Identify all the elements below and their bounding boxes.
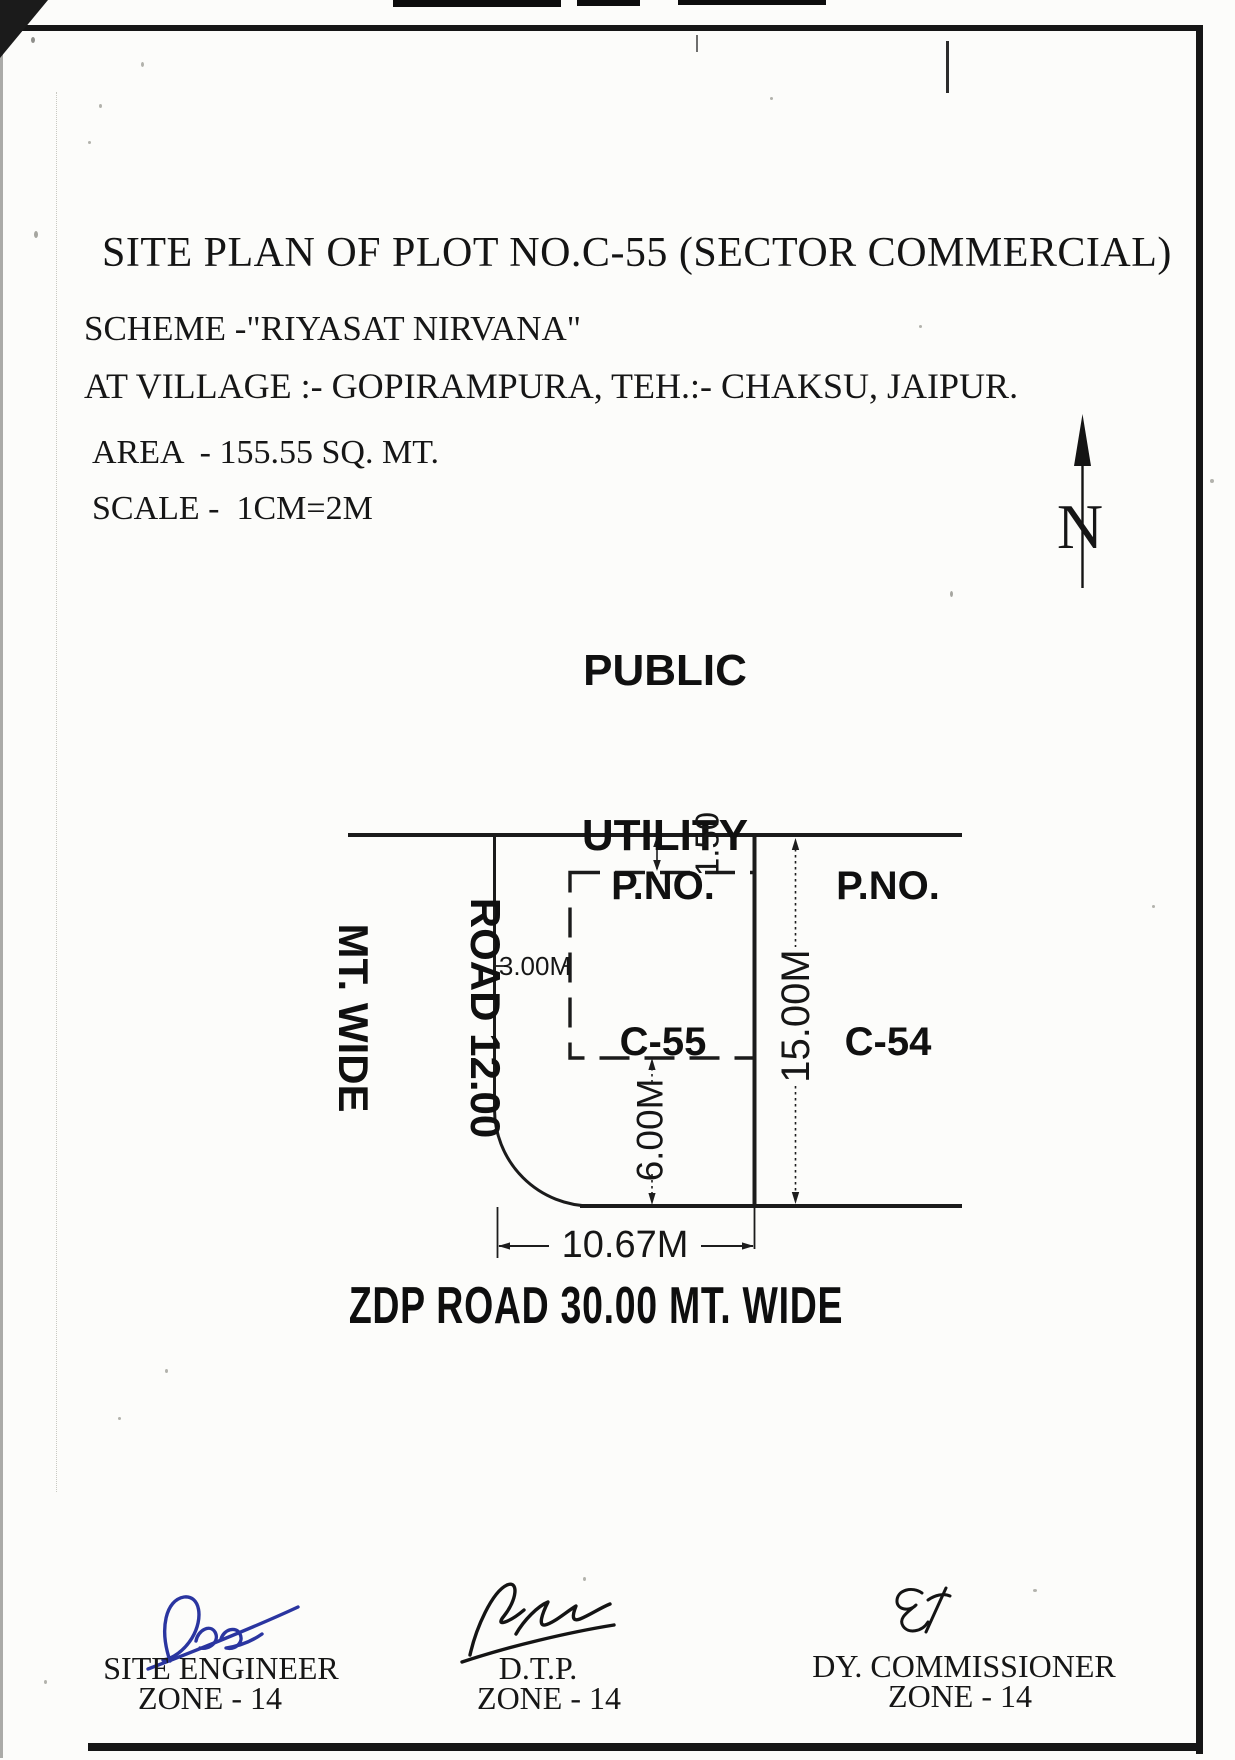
plot-c55-line2: C-55	[611, 1016, 715, 1068]
plot-c54-line1: P.NO.	[836, 860, 940, 912]
plot-c54-label: P.NO. C-54	[836, 756, 940, 1172]
dim-frontage-arrow-right	[742, 1242, 754, 1249]
corner-wedge	[0, 0, 48, 58]
dim-frontage-label: 10.67M	[562, 1226, 689, 1264]
dim-depth-arrow-up	[792, 838, 799, 850]
dim-west-setback-label: 3.00M	[499, 953, 571, 979]
scanned-site-plan-page: SITE PLAN OF PLOT NO.C-55 (SECTOR COMMER…	[0, 0, 1235, 1760]
road-12-line2: MT. WIDE	[331, 898, 375, 1138]
signature-dy-commissioner	[897, 1588, 950, 1632]
dim-depth-label: 15.00M	[776, 949, 816, 1082]
dim-frontage-arrow-left	[498, 1242, 510, 1249]
dim-depth-arrow-down	[792, 1192, 799, 1204]
road-12-line1: ROAD 12.00	[463, 898, 507, 1138]
zdp-road-label: ZDP ROAD 30.00 MT. WIDE	[349, 1280, 843, 1332]
dtp-zone: ZONE - 14	[477, 1682, 621, 1714]
north-arrow-icon	[1074, 414, 1091, 588]
public-utility-line1: PUBLIC	[582, 643, 748, 698]
site-engineer-zone: ZONE - 14	[138, 1682, 282, 1714]
dim-south-setback-arrow-down	[648, 1193, 655, 1205]
dim-south-setback-label: 6.00M	[632, 1079, 669, 1182]
dy-commissioner-zone: ZONE - 14	[888, 1680, 1032, 1712]
dim-north-setback-label: 1.50	[691, 812, 724, 876]
road-12-label: ROAD 12.00 MT. WIDE	[243, 898, 595, 1138]
plot-c54-line2: C-54	[836, 1016, 940, 1068]
